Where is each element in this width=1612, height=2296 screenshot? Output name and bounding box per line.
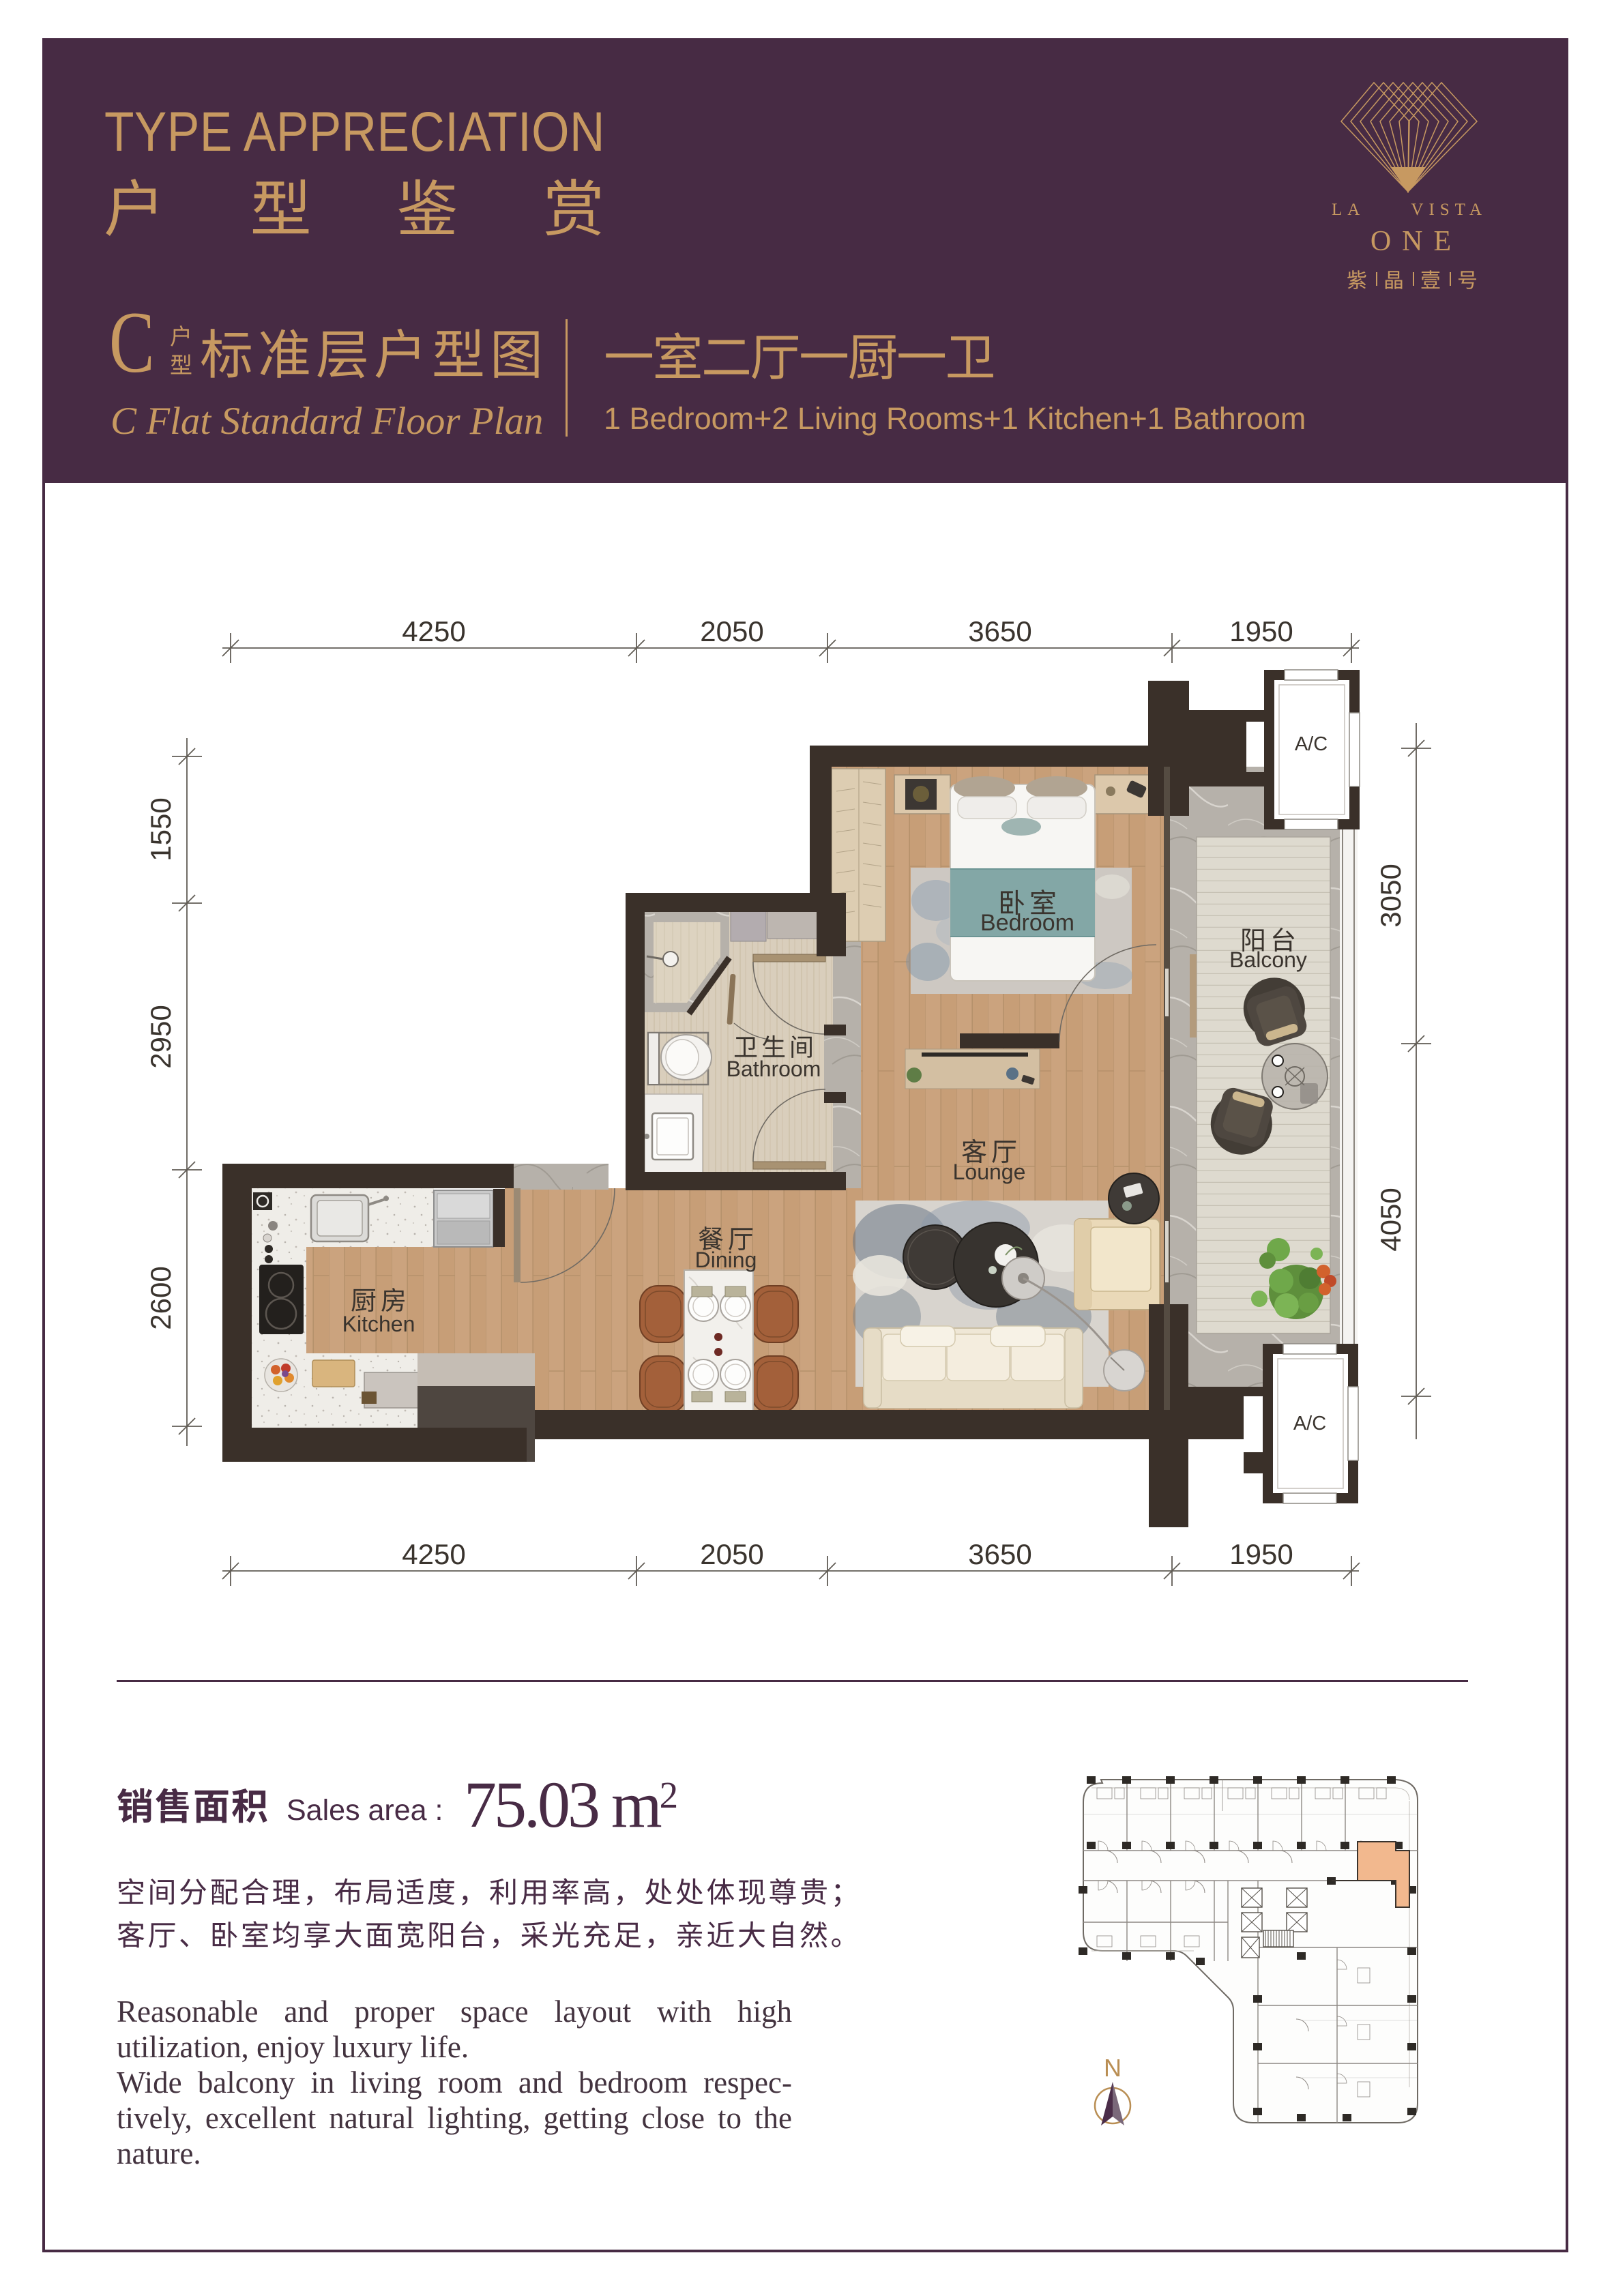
svg-text:Kitchen: Kitchen bbox=[342, 1312, 415, 1336]
svg-text:A/C: A/C bbox=[1293, 1413, 1326, 1434]
svg-text:Balcony: Balcony bbox=[1229, 947, 1307, 972]
svg-text:1950: 1950 bbox=[1229, 615, 1293, 647]
svg-text:1950: 1950 bbox=[1229, 1538, 1293, 1570]
svg-text:N: N bbox=[1104, 2054, 1122, 2082]
svg-text:Lounge: Lounge bbox=[953, 1160, 1026, 1184]
svg-text:1550: 1550 bbox=[145, 797, 177, 861]
svg-text:A/C: A/C bbox=[1295, 733, 1328, 755]
svg-text:2050: 2050 bbox=[700, 615, 763, 647]
svg-text:3050: 3050 bbox=[1375, 864, 1407, 927]
svg-text:2050: 2050 bbox=[700, 1538, 763, 1570]
svg-text:Bedroom: Bedroom bbox=[980, 910, 1074, 936]
svg-text:Dining: Dining bbox=[695, 1248, 757, 1272]
svg-text:3650: 3650 bbox=[968, 1538, 1031, 1570]
svg-text:4050: 4050 bbox=[1375, 1188, 1407, 1251]
svg-text:Bathroom: Bathroom bbox=[727, 1057, 821, 1081]
svg-text:2600: 2600 bbox=[145, 1266, 177, 1329]
svg-text:4250: 4250 bbox=[402, 1538, 465, 1570]
svg-text:2950: 2950 bbox=[145, 1005, 177, 1068]
svg-text:4250: 4250 bbox=[402, 615, 465, 647]
svg-text:3650: 3650 bbox=[968, 615, 1031, 647]
